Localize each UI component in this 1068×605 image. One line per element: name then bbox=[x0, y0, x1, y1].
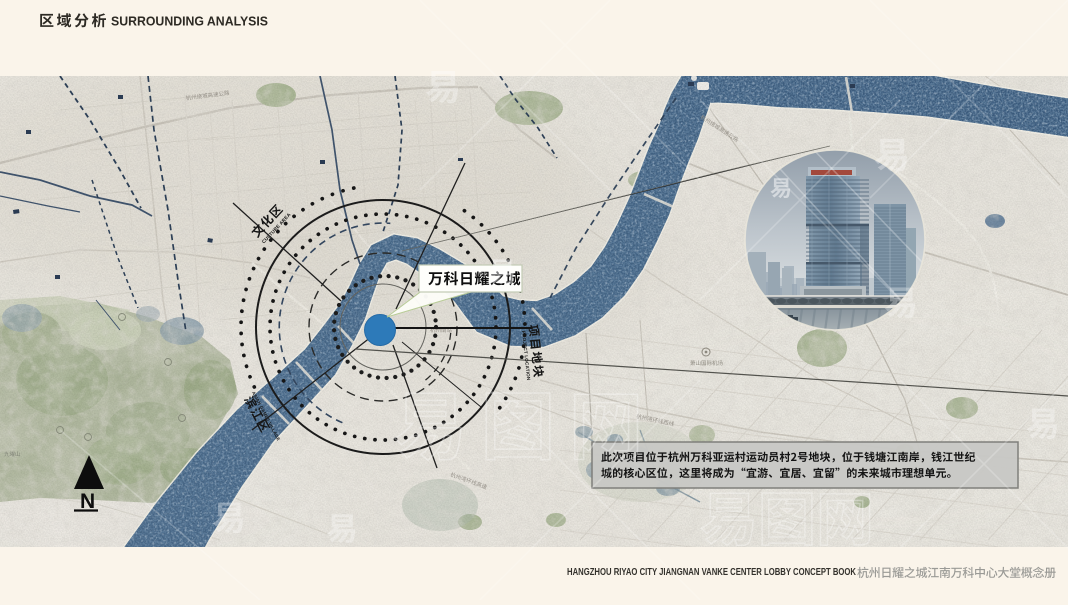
svg-text:HANGZHOU RIYAO CITY JIANGNAN V: HANGZHOU RIYAO CITY JIANGNAN VANKE CENTE… bbox=[567, 566, 856, 578]
svg-text:SURROUNDING ANALYSIS: SURROUNDING ANALYSIS bbox=[111, 14, 268, 29]
